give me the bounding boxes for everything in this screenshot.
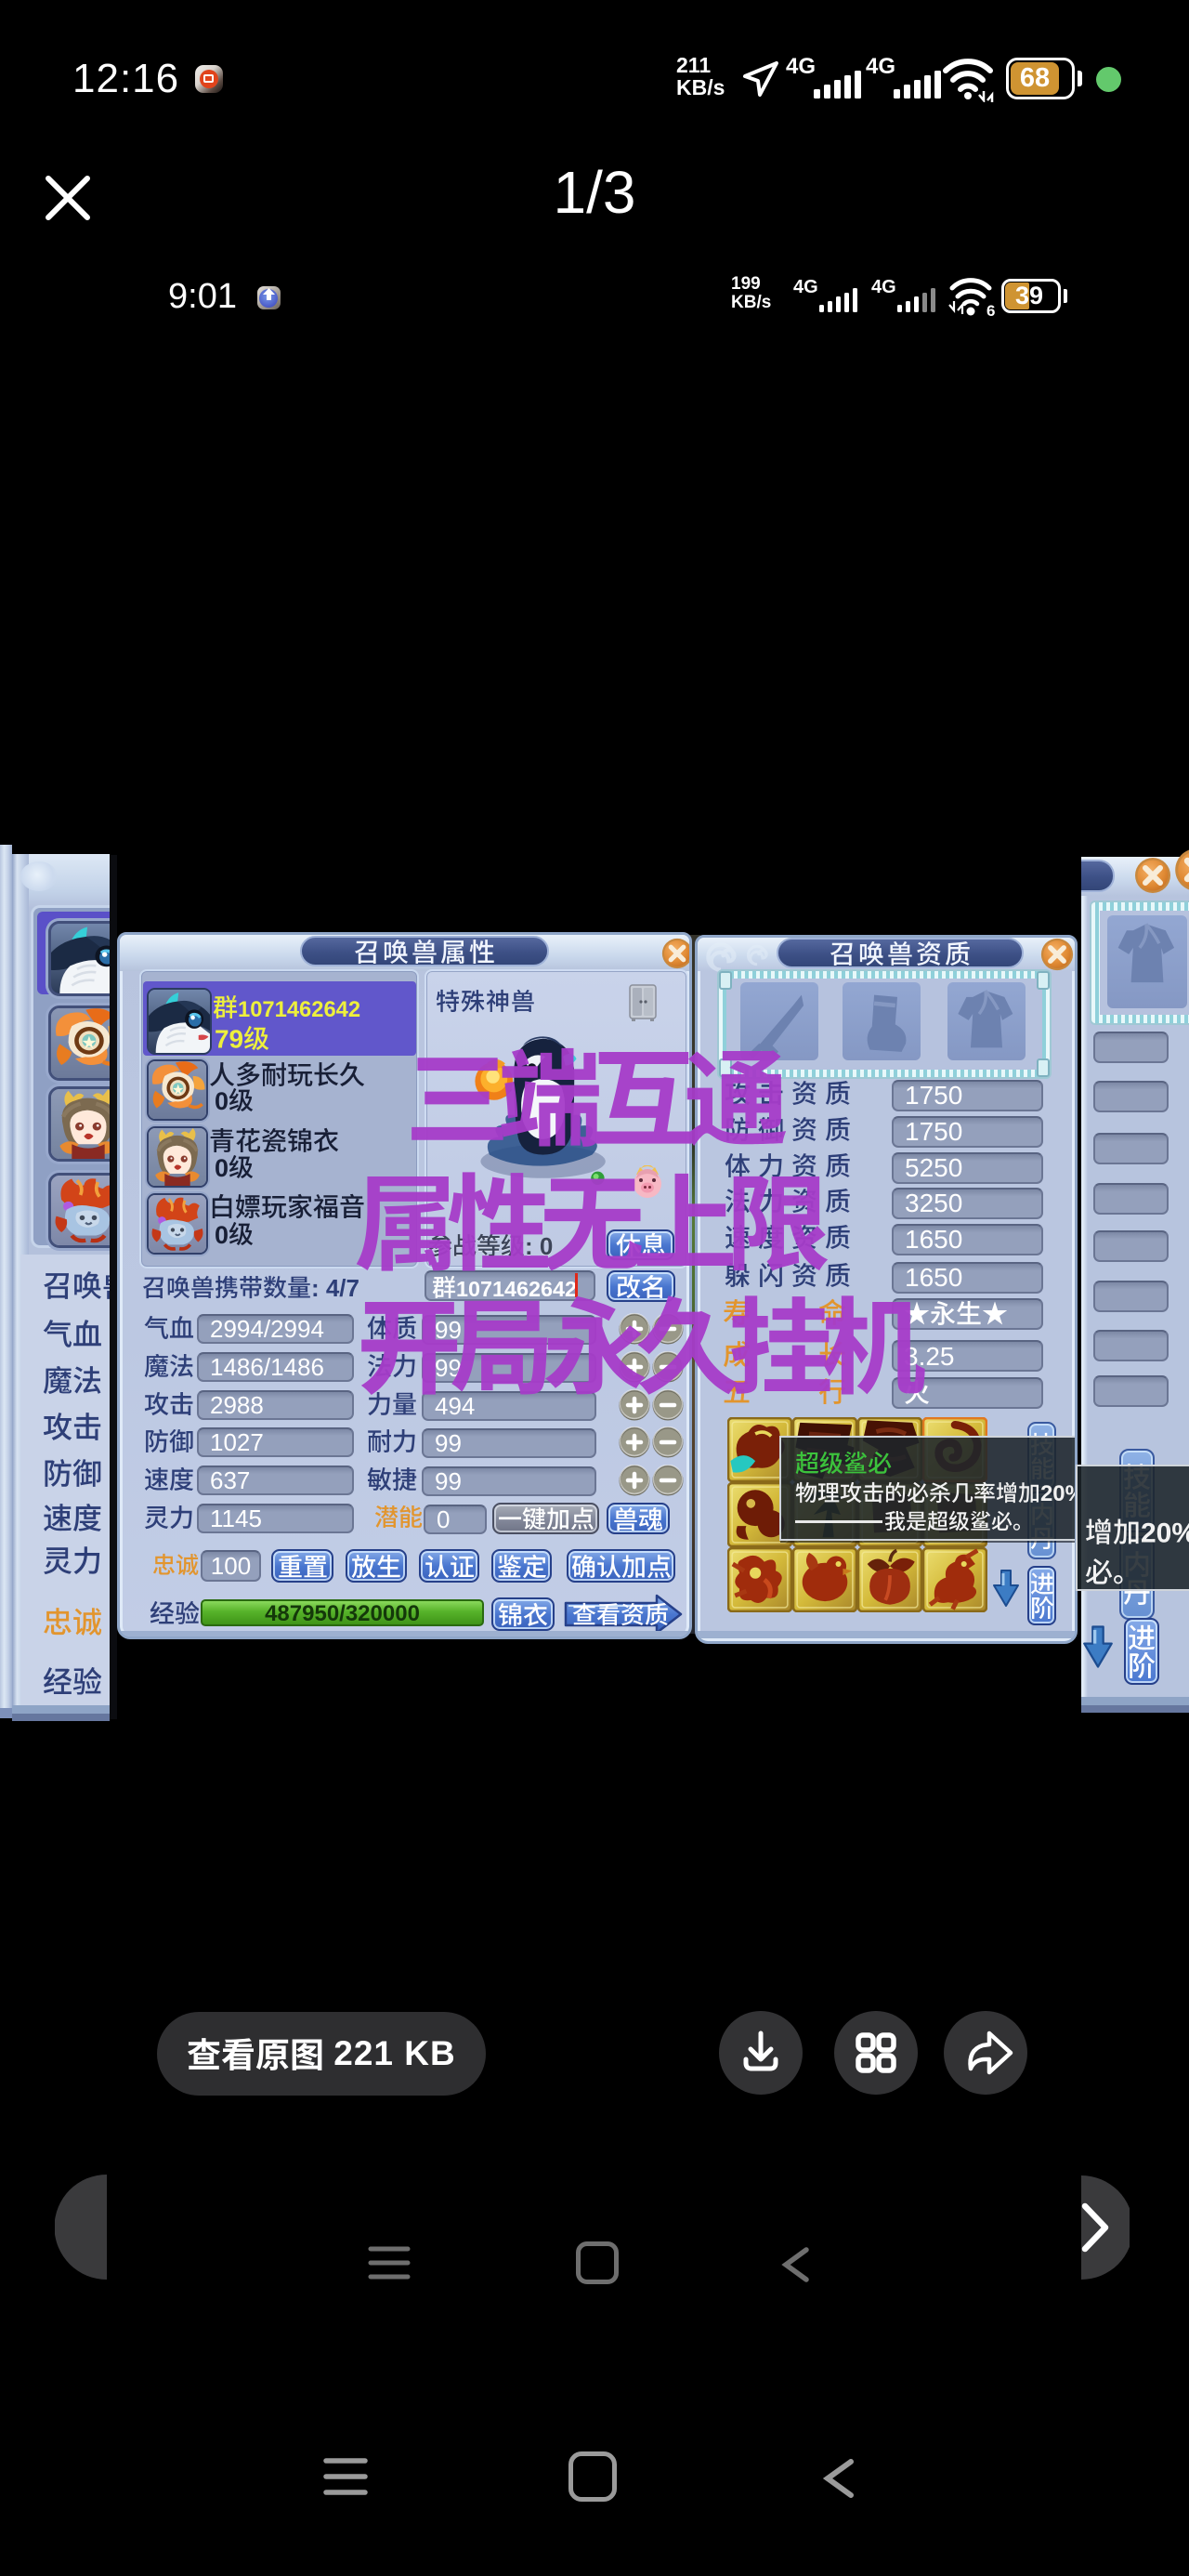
svg-text:20%: 20% xyxy=(1040,1481,1078,1504)
svg-text:0: 0 xyxy=(215,1154,229,1179)
svg-text:6: 6 xyxy=(986,302,995,318)
svg-text:79: 79 xyxy=(215,1025,243,1051)
svg-text:20%: 20% xyxy=(1141,1518,1189,1545)
svg-text:1071462642: 1071462642 xyxy=(238,997,360,1019)
svg-text:0: 0 xyxy=(215,1221,229,1246)
svg-text:: 4/7: : 4/7 xyxy=(311,1275,359,1299)
svg-text:0: 0 xyxy=(215,1087,229,1112)
